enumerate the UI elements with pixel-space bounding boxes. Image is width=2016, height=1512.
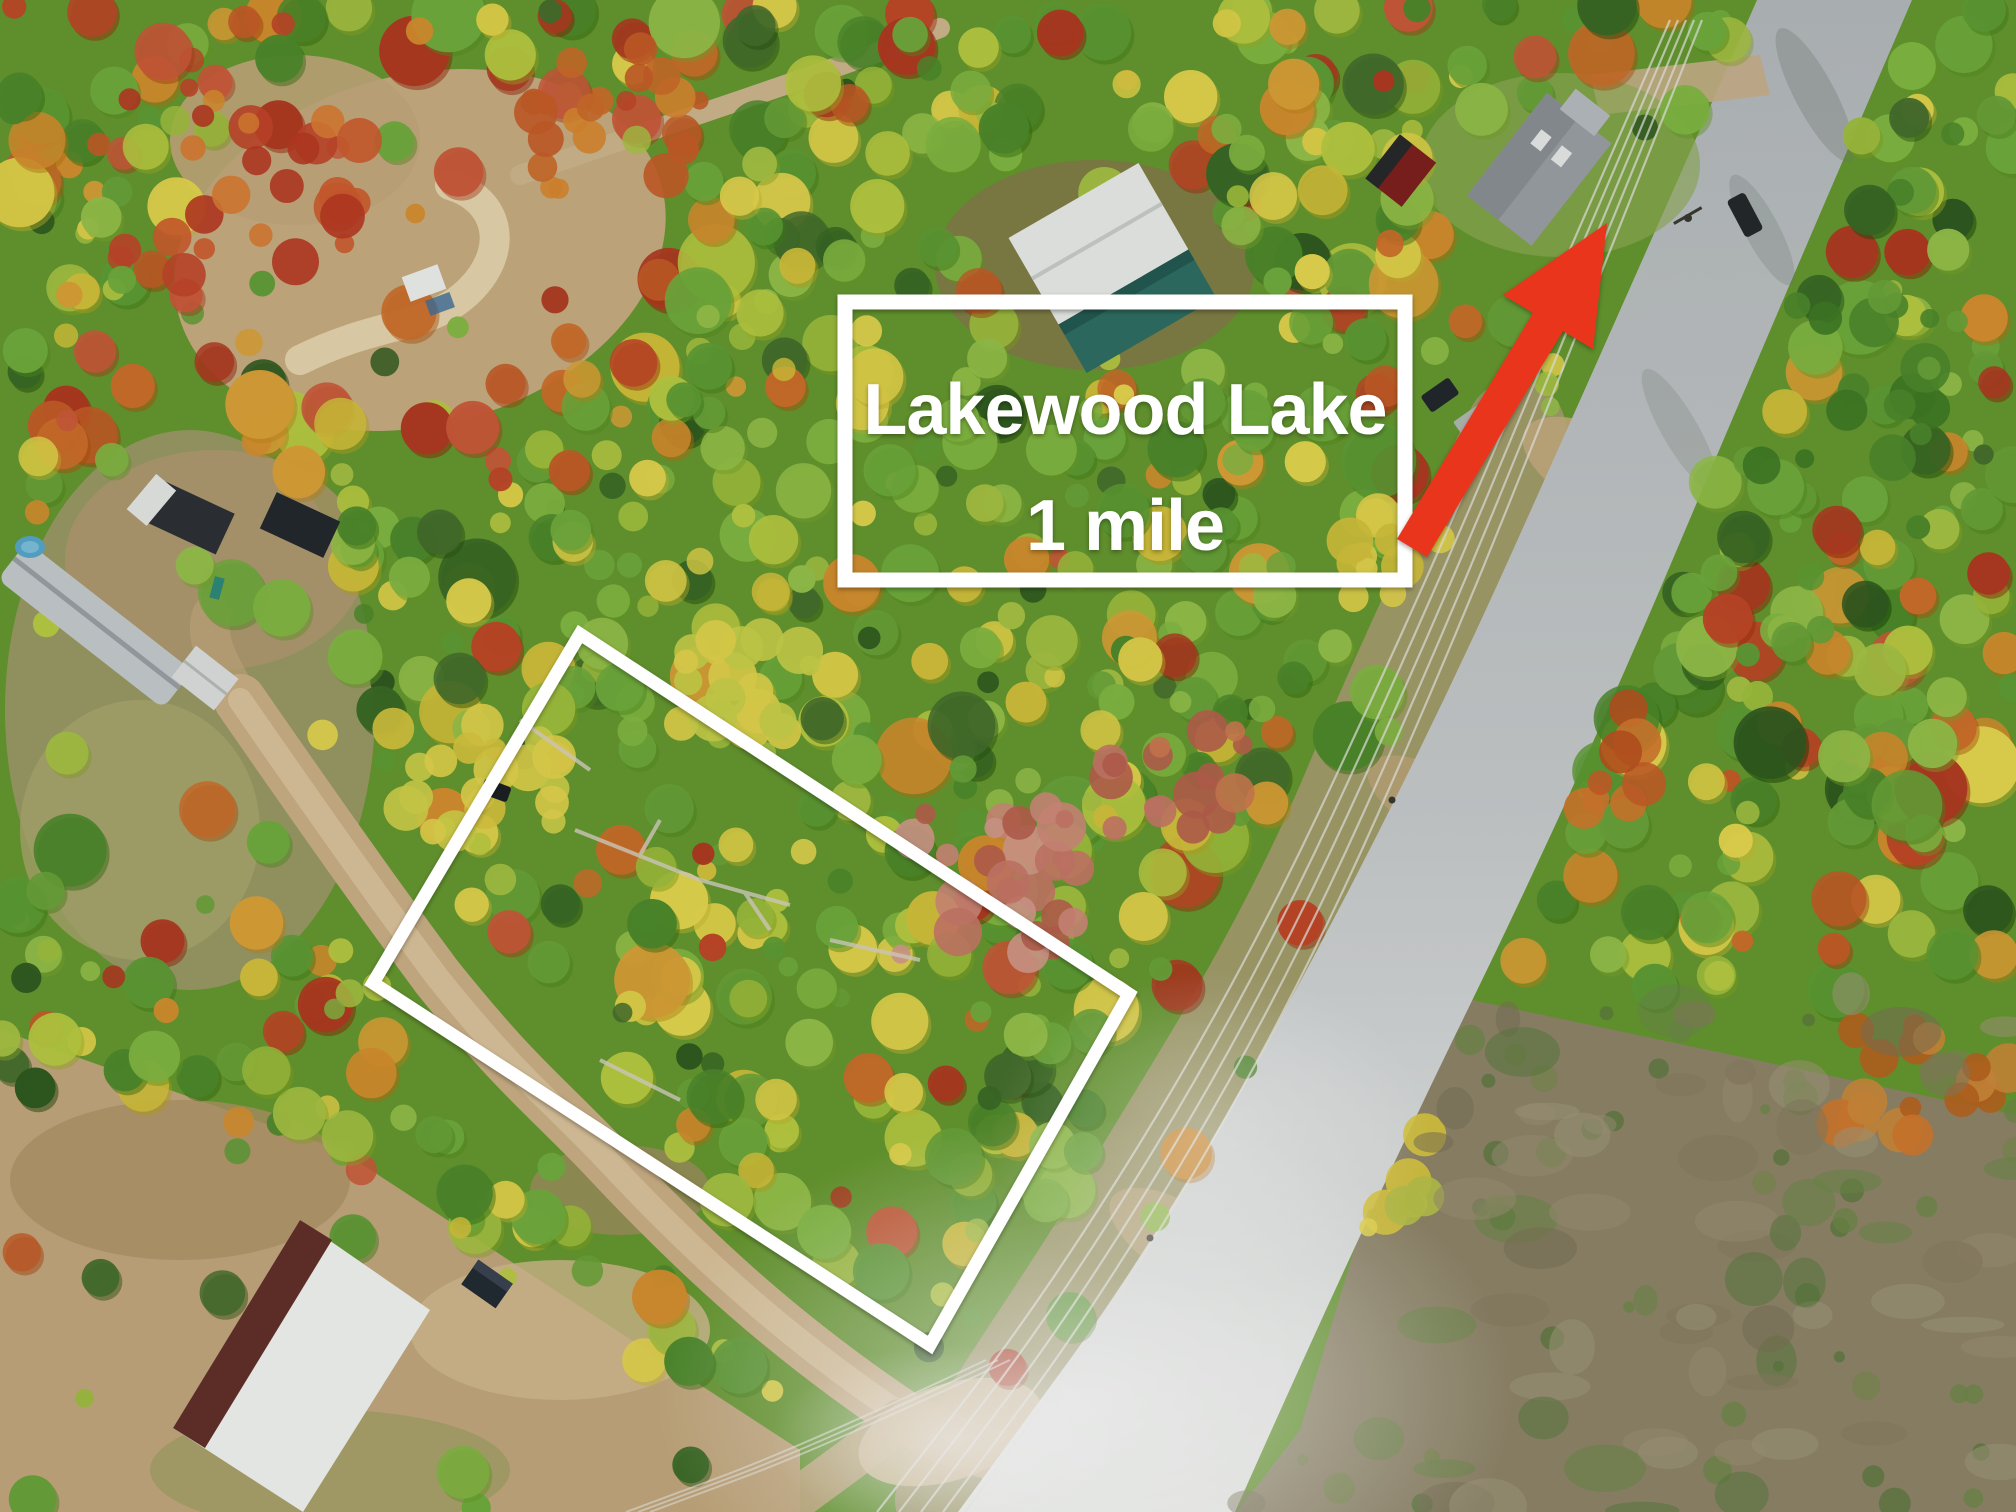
label-line1: Lakewood Lake <box>863 370 1386 450</box>
grain-overlay <box>0 0 2016 1512</box>
aerial-photo: Lakewood Lake 1 mile <box>0 0 2016 1512</box>
label-line2: 1 mile <box>1026 486 1224 566</box>
